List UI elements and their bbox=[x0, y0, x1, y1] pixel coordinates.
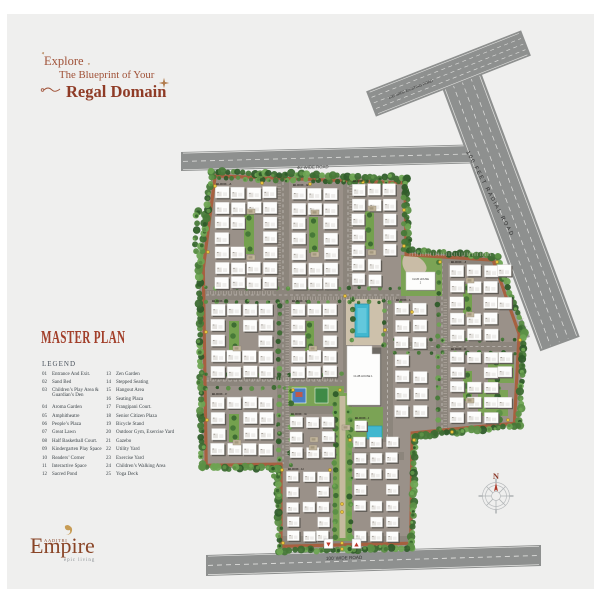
svg-text:BLOCK - A: BLOCK - A bbox=[216, 182, 232, 186]
svg-text:BLOCK - H: BLOCK - H bbox=[288, 467, 304, 471]
svg-text:N: N bbox=[493, 471, 500, 481]
svg-text:BLOCK - F: BLOCK - F bbox=[212, 392, 227, 396]
svg-text:CLUB HOUSE 1: CLUB HOUSE 1 bbox=[353, 374, 373, 378]
svg-text:CLUB HOUSE: CLUB HOUSE bbox=[412, 277, 429, 281]
svg-text:BLOCK - C: BLOCK - C bbox=[353, 179, 369, 183]
svg-text:BLOCK - G: BLOCK - G bbox=[291, 412, 307, 416]
svg-text:BLOCK - L: BLOCK - L bbox=[396, 298, 411, 302]
svg-text:BLOCK - B: BLOCK - B bbox=[293, 183, 309, 187]
svg-text:BLOCK - I: BLOCK - I bbox=[355, 416, 369, 420]
svg-text:40’ WIDE ROAD: 40’ WIDE ROAD bbox=[297, 164, 329, 170]
svg-text:BLOCK - J: BLOCK - J bbox=[451, 260, 466, 264]
svg-text:BLOCK - D: BLOCK - D bbox=[212, 299, 228, 303]
svg-text:BLOCK - K: BLOCK - K bbox=[451, 347, 467, 351]
svg-text:BLOCK - E: BLOCK - E bbox=[292, 299, 307, 303]
